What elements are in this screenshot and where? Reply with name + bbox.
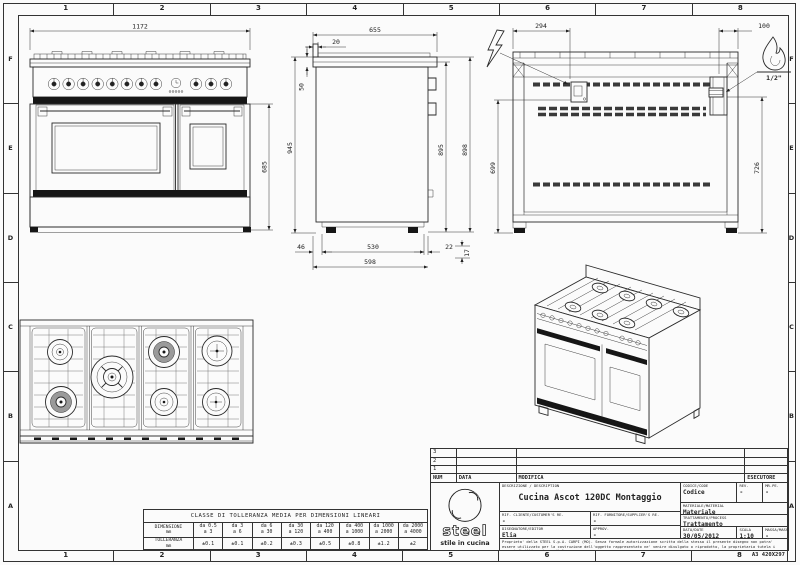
gas-size-label: 1/2" xyxy=(766,74,782,82)
burner xyxy=(149,337,180,368)
revision-header-modification: MODIFICA xyxy=(516,473,745,482)
tolerance-range: da 400a 1000 xyxy=(340,523,369,538)
burner xyxy=(48,340,73,365)
dim-front-width: 1172 xyxy=(132,23,148,31)
burner xyxy=(202,336,232,366)
description-cell: DESCRIZIONE / DESCRIPTION Cucina Ascot 1… xyxy=(500,483,680,511)
dim-base-depth: 598 xyxy=(364,258,376,266)
front-view: 1172 xyxy=(30,23,273,233)
foot xyxy=(30,227,38,232)
editor-cell: DISEGNATORE/EDITORElia xyxy=(500,525,590,538)
tolerance-range: da 2000a 4000 xyxy=(398,523,427,538)
dim-height-body: 895 xyxy=(437,144,445,156)
title-block: 3 2 1 NUM DATA MODIFICA ESECUTORE steel … xyxy=(430,448,788,550)
mass-cell: MASSA/MASS kg- xyxy=(762,526,788,538)
side-view: 655 20 945 50 xyxy=(286,26,474,270)
approval-cell: APPROV.- xyxy=(590,525,680,538)
revision-table: 3 2 1 NUM DATA MODIFICA ESECUTORE xyxy=(430,448,788,482)
gas-connection xyxy=(709,77,727,115)
tolerance-dim-label: DIMENSIONImm xyxy=(144,523,194,538)
burner xyxy=(46,387,77,418)
logo-tagline: stile in cucina xyxy=(440,540,489,547)
burner xyxy=(151,389,178,416)
code-cell: CODICE/CODECodice xyxy=(681,483,736,502)
tolerance-range: da 3a 6 xyxy=(223,523,252,538)
dim-backsplash: 20 xyxy=(332,38,340,46)
dim-height-grate: 898 xyxy=(461,144,469,156)
revision-row-number: 1 xyxy=(431,465,456,473)
description-label: DESCRIZIONE / DESCRIPTION xyxy=(500,483,680,489)
dim-gas-height: 726 xyxy=(753,162,761,174)
top-view xyxy=(20,320,253,443)
top-trim-strip xyxy=(33,97,247,104)
dim-elec-x: 294 xyxy=(535,22,547,30)
company-logo: steel stile in cucina xyxy=(431,483,500,550)
dim-gas-x: 100 xyxy=(758,22,770,30)
revision-header-date: DATA xyxy=(456,473,516,482)
tolerance-range: da 1000a 2000 xyxy=(369,523,398,538)
dim-feet-height: 17 xyxy=(463,249,471,257)
tolerance-range: da 6a 30 xyxy=(252,523,281,538)
revision-header-executor: ESECUTORE xyxy=(744,473,787,482)
foot xyxy=(243,227,251,232)
dim-cooktop-thickness: 50 xyxy=(298,83,306,91)
material-cell: MATERIALE/MATERIALMateriale xyxy=(681,502,788,514)
flame-icon: 1/2" xyxy=(726,37,791,92)
foot xyxy=(408,227,418,233)
dim-oven-height: 685 xyxy=(261,161,269,173)
tolerance-table: CLASSE DI TOLLERANZA MEDIA PER DIMENSION… xyxy=(143,509,428,550)
scale-cell: SCALA1:10 xyxy=(736,526,762,538)
tolerance-value: ±0.8 xyxy=(340,538,369,550)
rear-view: 294 100 xyxy=(487,22,791,233)
logo-text: steel xyxy=(442,522,487,539)
dim-plinth-depth: 530 xyxy=(367,243,379,251)
rev-cell: REV.- xyxy=(736,483,762,502)
legal-notice: Proprieta' della STEEL S.p.A. CARPI (MO)… xyxy=(500,538,788,550)
electrical-connection xyxy=(571,82,587,102)
tolerance-range: da 120a 400 xyxy=(311,523,340,538)
tolerance-range: da 0.5a 3 xyxy=(194,523,223,538)
supplier-ref-cell: RIF. FORNITORE/SUPPLIER'S RE.- xyxy=(590,511,680,525)
dim-side-depth: 655 xyxy=(369,26,381,34)
tolerance-value: ±0.3 xyxy=(281,538,310,550)
dim-front-offset: 22 xyxy=(445,243,453,251)
tolerance-value: ±1.2 xyxy=(369,538,398,550)
control-knobs xyxy=(48,78,232,90)
tolerance-value: ±2 xyxy=(398,538,427,550)
tolerance-value: ±0.2 xyxy=(252,538,281,550)
revision-row-number: 3 xyxy=(431,449,456,457)
lightning-icon xyxy=(487,30,568,84)
revision-row-number: 2 xyxy=(431,457,456,465)
mrpe-cell: MR.PE.- xyxy=(762,483,788,502)
revision-header-num: NUM xyxy=(431,473,456,482)
dim-elec-height: 699 xyxy=(489,162,497,174)
tolerance-table-title: CLASSE DI TOLLERANZA MEDIA PER DIMENSION… xyxy=(144,510,428,523)
tolerance-range: da 30a 120 xyxy=(281,523,310,538)
customer-ref-cell: RIF. CLIENTE/CUSTOMER'S RE.- xyxy=(500,511,590,525)
left-oven-door xyxy=(36,105,174,196)
drawing-sheet: 1 2 3 4 5 6 7 8 1 2 3 4 5 6 7 8 A3 420X2… xyxy=(0,0,800,565)
drawer-strip xyxy=(33,190,247,197)
process-cell: TRATTAMENTO/PROCESSTrattamento xyxy=(681,514,788,526)
wok-burner xyxy=(91,356,133,398)
burner xyxy=(203,389,230,416)
foot xyxy=(326,227,336,233)
tolerance-value: ±0.1 xyxy=(194,538,223,550)
tolerance-tol-label: TOLLERANZAmm xyxy=(144,538,194,550)
isometric-view xyxy=(535,265,700,444)
dim-height-total: 945 xyxy=(286,142,294,154)
drawing-title: Cucina Ascot 120DC Montaggio xyxy=(500,493,680,503)
right-oven-door xyxy=(180,105,244,196)
clock xyxy=(169,78,183,92)
dim-back-offset: 46 xyxy=(297,243,305,251)
date-cell: DATA/DATE30/05/2012 xyxy=(681,526,736,538)
tolerance-value: ±0.1 xyxy=(223,538,252,550)
tolerance-value: ±0.5 xyxy=(311,538,340,550)
